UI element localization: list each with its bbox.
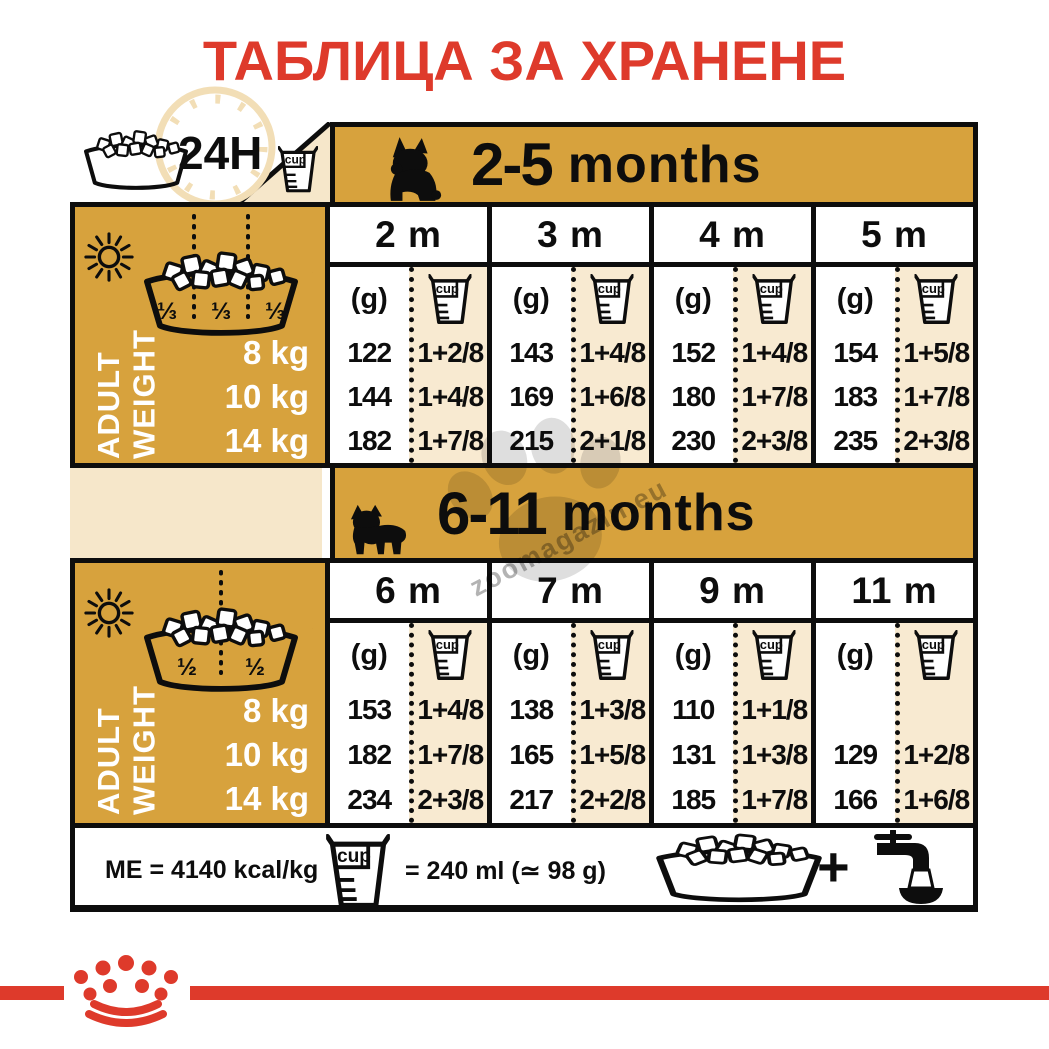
cup-value: 2+3/8 [414, 778, 488, 823]
grams-value: 235 [816, 419, 895, 463]
cup-value: 2+1/8 [576, 419, 650, 463]
weight-label: 10 kg [159, 733, 309, 777]
month-column-7m: 7 m (g) 138 165 217 cup 1+3/8 1+5/8 2+2/… [492, 563, 654, 823]
bowl-thirds-icon: ⅓ ⅓ ⅓ [125, 213, 317, 345]
grams-unit-label: (g) [816, 267, 895, 331]
grams-value: 153 [330, 687, 409, 732]
age-range-unit: months [568, 135, 762, 195]
brand-stripe [0, 986, 64, 1000]
weight-label: 10 kg [159, 375, 309, 419]
grams-value [816, 687, 895, 732]
svg-text:⅓: ⅓ [211, 298, 231, 325]
svg-text:⅓: ⅓ [157, 298, 177, 325]
cup-value: 1+6/8 [576, 375, 650, 419]
svg-text:½: ½ [177, 654, 197, 681]
grams-unit-label: (g) [654, 623, 733, 687]
grams-unit-label: (g) [330, 267, 409, 331]
grams-value: 165 [492, 732, 571, 777]
age-range-unit: months [562, 483, 756, 543]
measuring-cup-icon: cup [590, 274, 634, 324]
age-band-2-5-months: 2-5 months [330, 122, 978, 202]
cup-value: 1+7/8 [900, 375, 974, 419]
moon-icon [281, 235, 315, 279]
cup-value: 1+7/8 [414, 419, 488, 463]
section-spacer [70, 468, 322, 558]
grams-unit-label: (g) [492, 267, 571, 331]
24h-label: 24H [178, 127, 262, 179]
age-range: 2-5 [471, 130, 552, 199]
cup-equivalence-label: = 240 ml (≃ 98 g) [405, 856, 606, 886]
cup-value: 1+3/8 [738, 732, 812, 777]
grams-value: 143 [492, 331, 571, 375]
french-bulldog-puppy-icon [387, 136, 445, 202]
month-column-5m: 5 m (g) 154 183 235 cup 1+5/8 1+7/8 2+3/… [816, 207, 973, 463]
french-bulldog-icon [349, 504, 411, 556]
grams-unit-label: (g) [492, 623, 571, 687]
grams-value: 131 [654, 732, 733, 777]
cup-value: 1+4/8 [576, 331, 650, 375]
adult-weight-panel: ⅓ ⅓ ⅓ ADULT WEIGHT 8 kg 10 kg 14 kg [75, 207, 330, 463]
cup-value: 1+6/8 [900, 778, 974, 823]
measuring-cup-icon: cup [752, 630, 796, 680]
weight-label: 8 kg [159, 689, 309, 733]
cup-value: 1+5/8 [900, 331, 974, 375]
weight-label: 8 kg [159, 331, 309, 375]
cup-value [900, 687, 974, 732]
weight-rows: 8 kg 10 kg 14 kg [159, 331, 309, 463]
metabolizable-energy-label: ME = 4140 kcal/kg [105, 856, 318, 885]
svg-text:cup: cup [436, 281, 459, 296]
grams-value: 215 [492, 419, 571, 463]
measuring-cup-icon: cup [914, 274, 958, 324]
svg-text:cup: cup [337, 846, 371, 867]
grams-value: 122 [330, 331, 409, 375]
cup-value: 1+4/8 [414, 375, 488, 419]
grams-value: 230 [654, 419, 733, 463]
svg-text:cup: cup [760, 281, 783, 296]
svg-text:cup: cup [598, 637, 621, 652]
grams-value: 166 [816, 778, 895, 823]
svg-text:½: ½ [245, 654, 265, 681]
grams-value: 152 [654, 331, 733, 375]
cup-value: 1+7/8 [738, 375, 812, 419]
grams-unit-label: (g) [654, 267, 733, 331]
cup-value: 1+3/8 [576, 687, 650, 732]
adult-weight-label: ADULT WEIGHT [91, 685, 162, 815]
month-column-3m: 3 m (g) 143 169 215 cup 1+4/8 1+6/8 2+1/… [492, 207, 654, 463]
grams-value: 234 [330, 778, 409, 823]
cup-value: 1+4/8 [738, 331, 812, 375]
cup-value: 1+7/8 [738, 778, 812, 823]
cup-value: 1+5/8 [576, 732, 650, 777]
grams-value: 110 [654, 687, 733, 732]
bowl-halves-icon: ½ ½ [125, 569, 317, 701]
cup-value: 2+3/8 [900, 419, 974, 463]
svg-text:cup: cup [598, 281, 621, 296]
brand-stripe [190, 986, 1049, 1000]
month-header: 7 m [492, 563, 649, 623]
grams-value: 182 [330, 732, 409, 777]
cup-value: 1+2/8 [900, 732, 974, 777]
cup-value: 1+4/8 [414, 687, 488, 732]
page-title: ТАБЛИЦА ЗА ХРАНЕНЕ [0, 28, 1049, 93]
daily-ration-art: 24H [70, 85, 340, 210]
feeding-table-infographic: ТАБЛИЦА ЗА ХРАНЕНЕ cup 24H [0, 0, 1049, 1049]
month-column-11m: 11 m (g) 129 166 cup 1+2/8 1+6/8 [816, 563, 973, 823]
measuring-cup-icon: cup [590, 630, 634, 680]
measuring-cup-icon: cup [428, 274, 472, 324]
month-column-2m: 2 m (g) 122 144 182 cup 1+2/8 1+4/8 1+7/… [330, 207, 492, 463]
adult-weight-panel: ½ ½ ADULT WEIGHT 8 kg 10 kg 14 kg [75, 563, 330, 823]
month-column-4m: 4 m (g) 152 180 230 cup 1+4/8 1+7/8 2+3/… [654, 207, 816, 463]
royal-canin-crown-logo [64, 950, 192, 1028]
plus-sign: + [817, 834, 850, 899]
month-header: 9 m [654, 563, 811, 623]
month-header: 5 m [816, 207, 973, 267]
month-header: 11 m [816, 563, 973, 623]
svg-text:⅓: ⅓ [265, 298, 285, 325]
cup-value: 1+7/8 [414, 732, 488, 777]
adult-weight-label: ADULT WEIGHT [91, 329, 162, 459]
grams-unit-label: (g) [816, 623, 895, 687]
svg-text:cup: cup [922, 281, 945, 296]
weight-label: 14 kg [159, 777, 309, 821]
water-tap-icon [863, 830, 955, 908]
grams-value: 180 [654, 375, 733, 419]
grams-value: 154 [816, 331, 895, 375]
svg-text:cup: cup [436, 637, 459, 652]
grams-unit-label: (g) [330, 623, 409, 687]
age-band-6-11-months: 6-11 months [330, 468, 978, 558]
measuring-cup-icon: cup [428, 630, 472, 680]
cup-value: 1+1/8 [738, 687, 812, 732]
kibble-bowl-icon [653, 830, 825, 908]
grams-value: 185 [654, 778, 733, 823]
grams-value: 217 [492, 778, 571, 823]
svg-text:cup: cup [760, 637, 783, 652]
month-column-6m: 6 m (g) 153 182 234 cup 1+4/8 1+7/8 2+3/… [330, 563, 492, 823]
cup-value: 2+3/8 [738, 419, 812, 463]
grams-value: 182 [330, 419, 409, 463]
grams-value: 169 [492, 375, 571, 419]
age-range: 6-11 [437, 479, 546, 548]
month-header: 3 m [492, 207, 649, 267]
month-column-9m: 9 m (g) 110 131 185 cup 1+1/8 1+3/8 1+7/… [654, 563, 816, 823]
weight-rows: 8 kg 10 kg 14 kg [159, 689, 309, 821]
grams-value: 183 [816, 375, 895, 419]
legend-strip: ME = 4140 kcal/kg cup = 240 ml (≃ 98 g) … [70, 828, 978, 912]
grams-value: 144 [330, 375, 409, 419]
cup-value: 2+2/8 [576, 778, 650, 823]
month-header: 4 m [654, 207, 811, 267]
feeding-table-2-5-months: ⅓ ⅓ ⅓ ADULT WEIGHT 8 kg 10 kg 14 kg 2 m … [70, 202, 978, 468]
measuring-cup-icon: cup [325, 834, 391, 908]
moon-icon [281, 591, 315, 635]
feeding-table-6-11-months: ½ ½ ADULT WEIGHT 8 kg 10 kg 14 kg 6 m (g… [70, 558, 978, 828]
grams-value: 129 [816, 732, 895, 777]
cup-value: 1+2/8 [414, 331, 488, 375]
month-header: 2 m [330, 207, 487, 267]
month-header: 6 m [330, 563, 487, 623]
weight-label: 14 kg [159, 419, 309, 463]
svg-text:cup: cup [922, 637, 945, 652]
measuring-cup-icon: cup [752, 274, 796, 324]
grams-value: 138 [492, 687, 571, 732]
measuring-cup-icon: cup [914, 630, 958, 680]
